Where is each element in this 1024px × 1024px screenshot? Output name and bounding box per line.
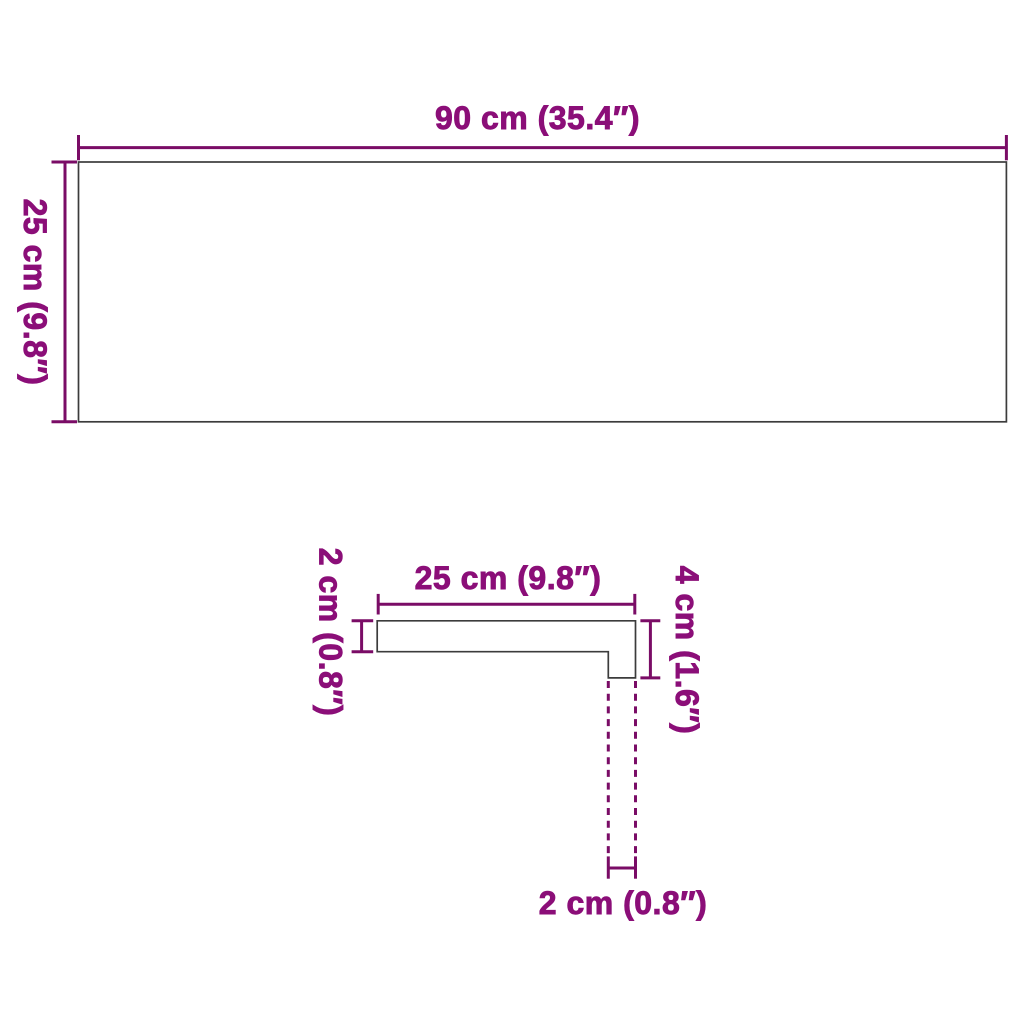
svg-text:2 cm (0.8″): 2 cm (0.8″) — [313, 548, 349, 716]
svg-text:25 cm (9.8″): 25 cm (9.8″) — [17, 199, 53, 386]
svg-text:90 cm (35.4″): 90 cm (35.4″) — [435, 100, 640, 136]
svg-text:2 cm (0.8″): 2 cm (0.8″) — [539, 885, 707, 921]
svg-text:4 cm (1.6″): 4 cm (1.6″) — [669, 566, 705, 734]
svg-text:25 cm (9.8″): 25 cm (9.8″) — [415, 560, 602, 596]
